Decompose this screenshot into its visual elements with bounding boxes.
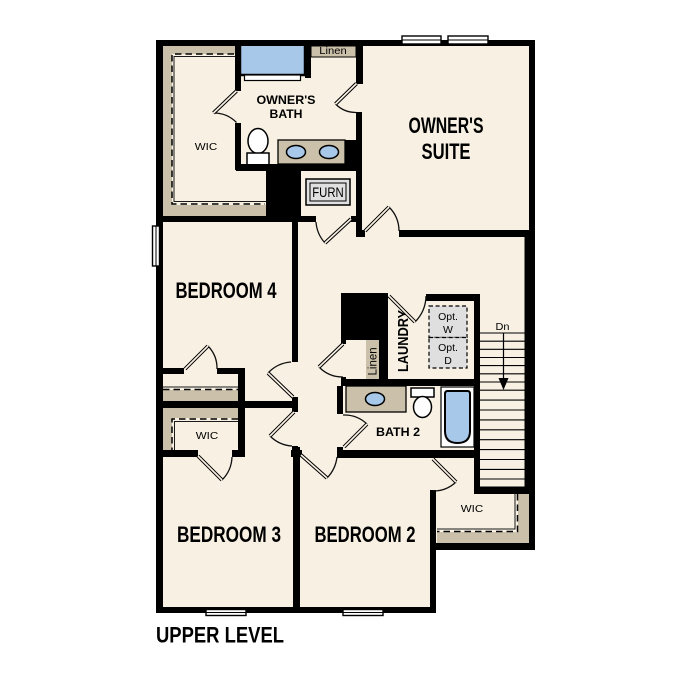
svg-text:Linen: Linen: [368, 347, 380, 375]
svg-text:BATH: BATH: [270, 107, 303, 121]
svg-text:BEDROOM 4: BEDROOM 4: [176, 278, 278, 303]
svg-text:W: W: [443, 324, 453, 336]
svg-text:D: D: [444, 355, 452, 367]
svg-text:BATH 2: BATH 2: [376, 425, 420, 439]
svg-text:Dn: Dn: [496, 321, 510, 333]
svg-text:BEDROOM 3: BEDROOM 3: [177, 522, 281, 547]
svg-text:WIC: WIC: [195, 141, 218, 153]
svg-text:SUITE: SUITE: [422, 139, 471, 164]
svg-text:Opt.: Opt.: [438, 342, 458, 354]
svg-text:WIC: WIC: [461, 503, 484, 515]
svg-text:LAUNDRY: LAUNDRY: [395, 310, 412, 372]
svg-text:BEDROOM 2: BEDROOM 2: [315, 522, 416, 547]
svg-text:OWNER'S: OWNER'S: [409, 113, 484, 138]
svg-text:WIC: WIC: [196, 430, 219, 442]
svg-text:Opt.: Opt.: [438, 311, 458, 323]
svg-text:Linen: Linen: [319, 45, 347, 57]
svg-text:FURN: FURN: [312, 185, 344, 200]
svg-text:UPPER LEVEL: UPPER LEVEL: [156, 623, 284, 648]
svg-text:OWNER'S: OWNER'S: [257, 93, 316, 107]
